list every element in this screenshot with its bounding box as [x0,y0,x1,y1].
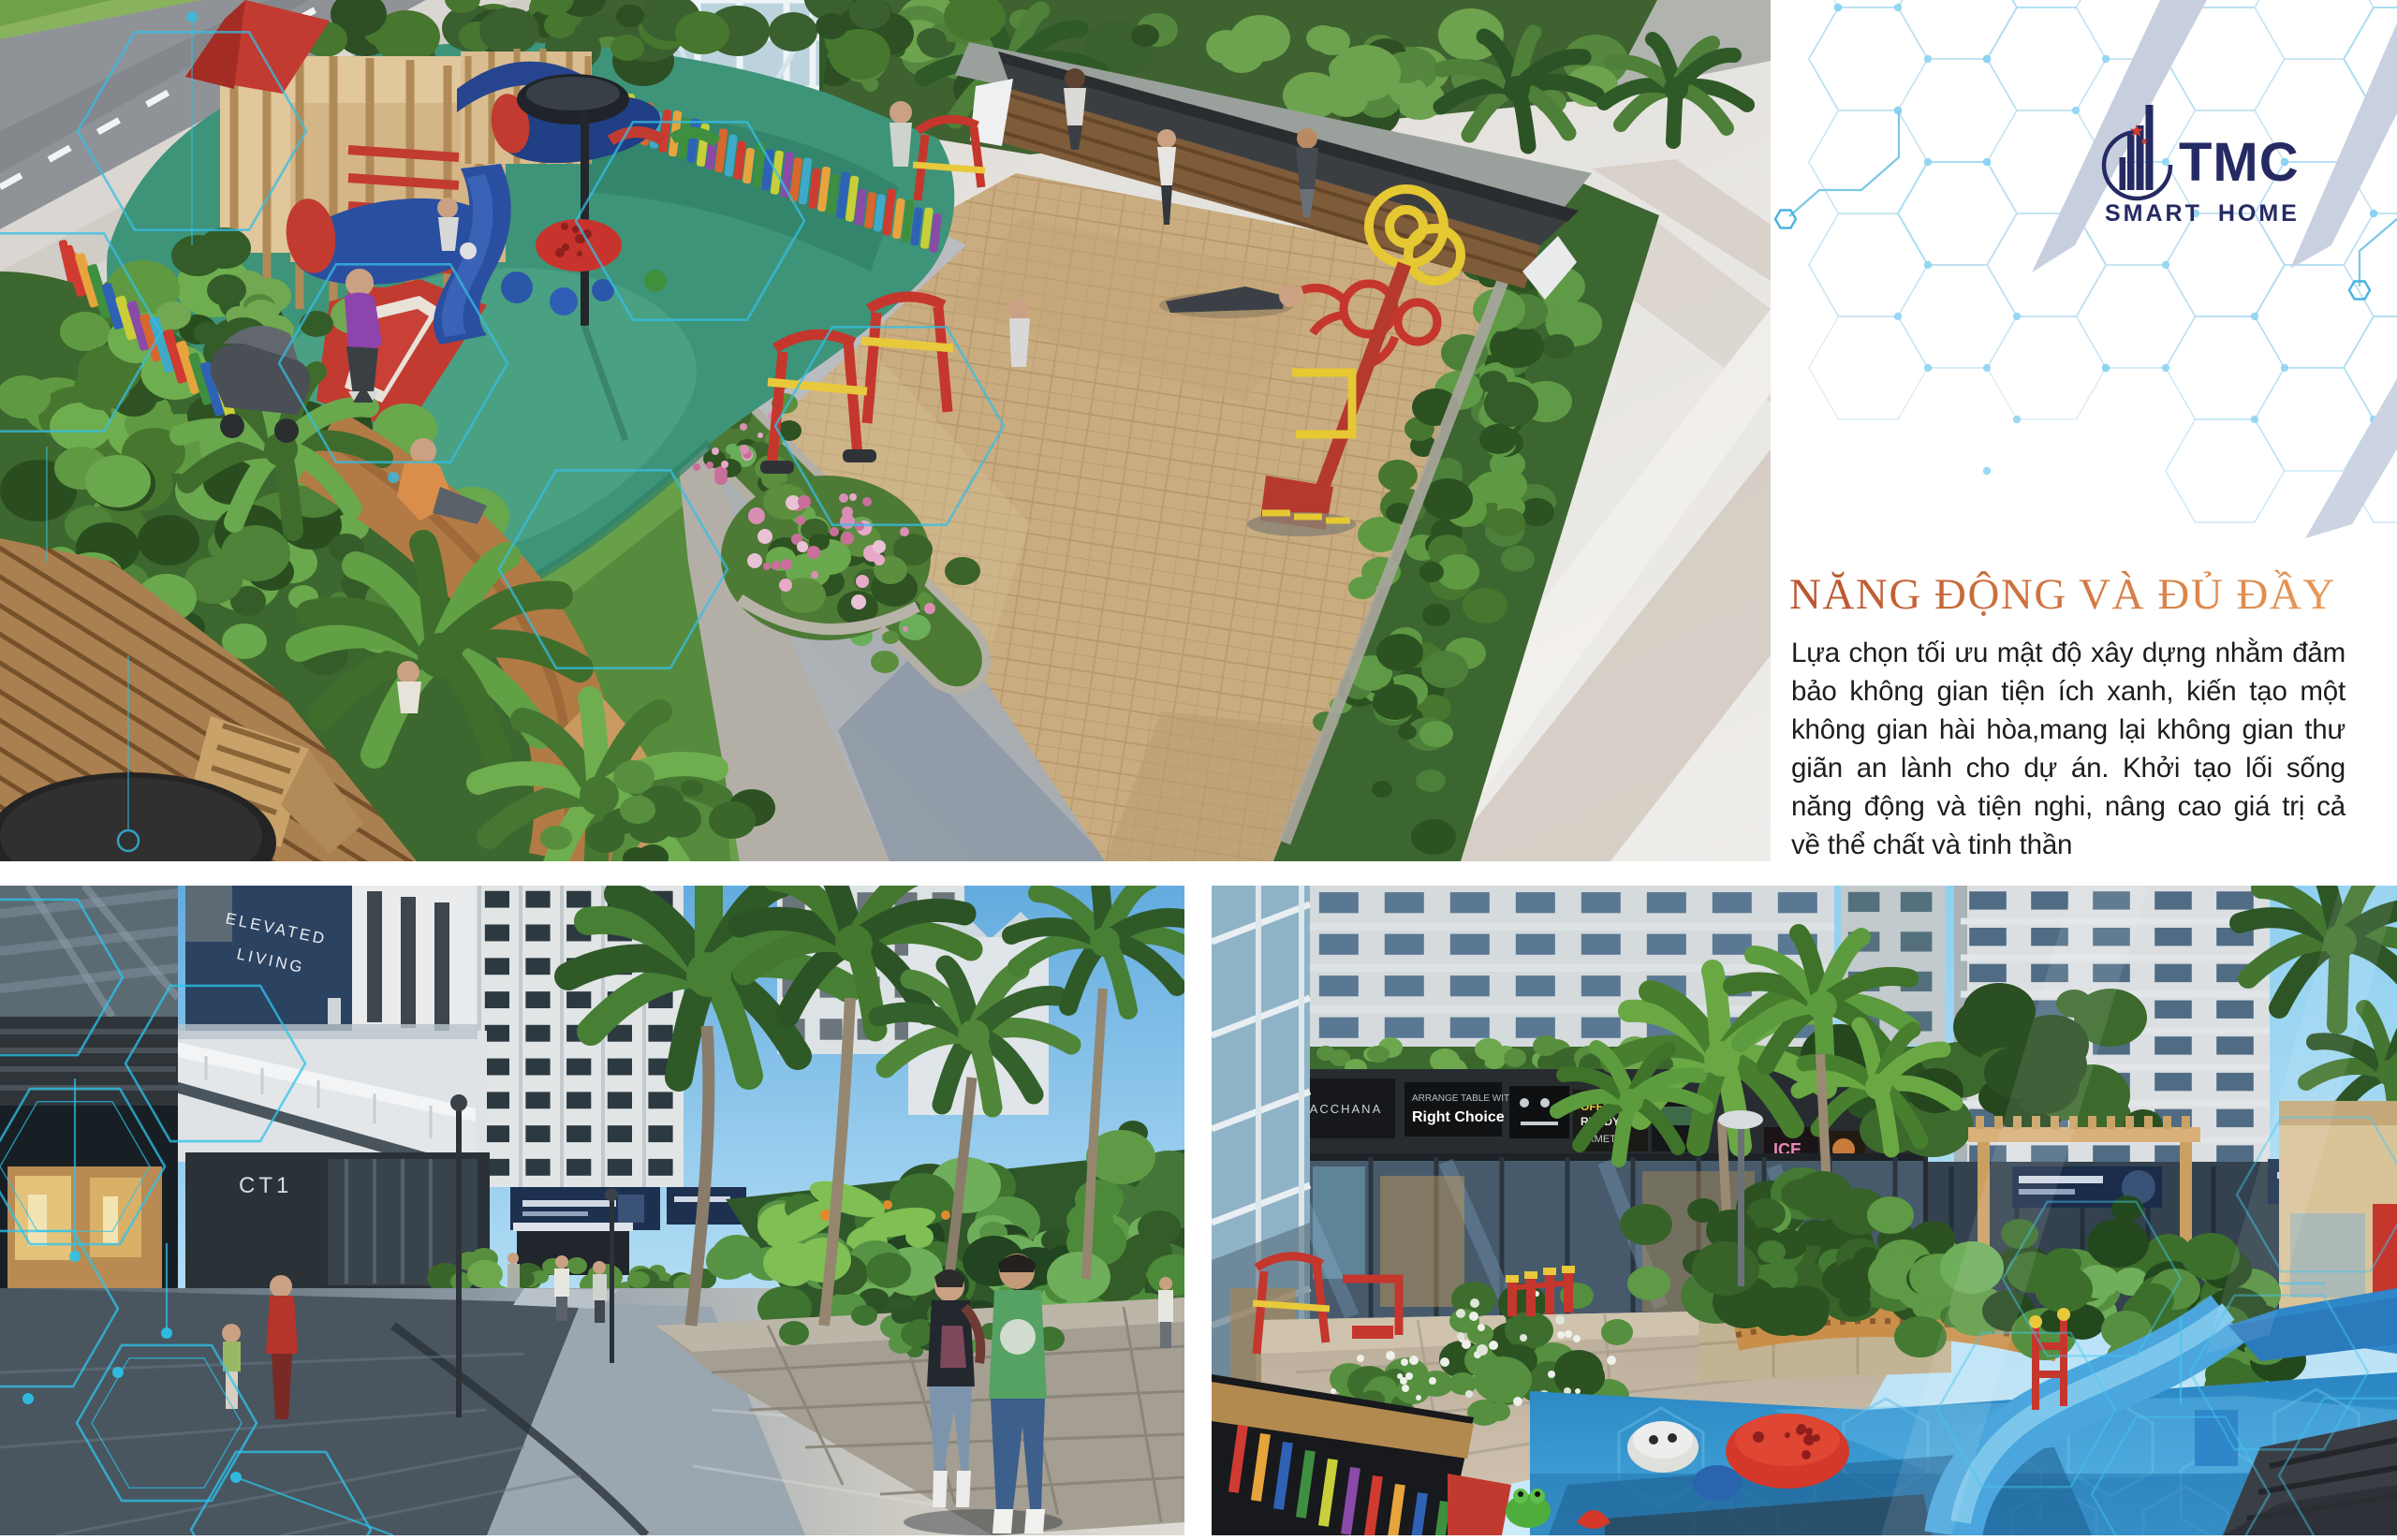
svg-text:SMART HOME: SMART HOME [2105,200,2300,227]
svg-text:BACCHANA: BACCHANA [1300,1102,1382,1116]
svg-text:ARRANGE TABLE WITH: ARRANGE TABLE WITH [1412,1093,1516,1104]
svg-text:Right Choice: Right Choice [1412,1109,1505,1125]
svg-text:TMC: TMC [2179,132,2300,193]
svg-text:CT1: CT1 [239,1173,292,1198]
